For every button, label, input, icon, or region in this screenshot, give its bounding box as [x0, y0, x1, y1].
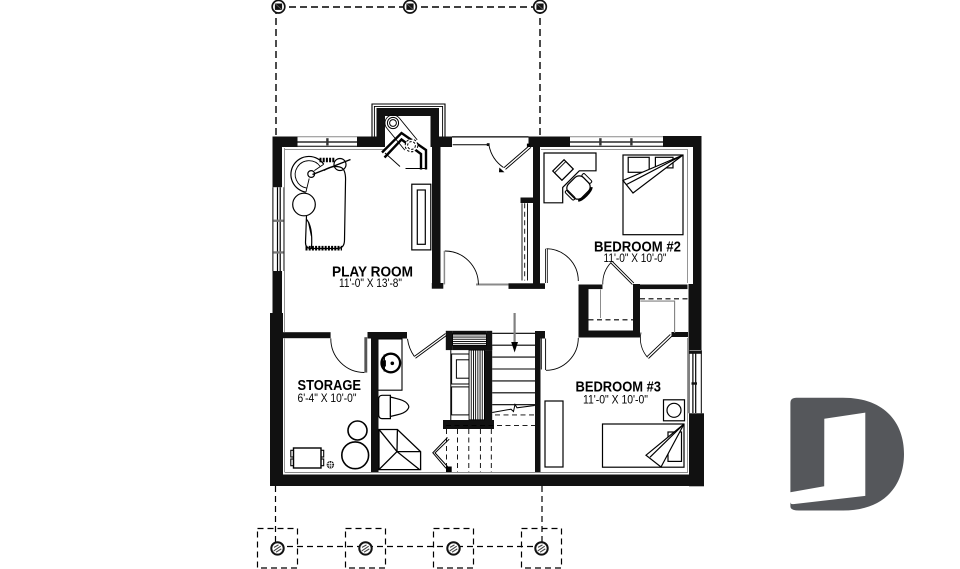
svg-text:11'-0" X 10'-0": 11'-0" X 10'-0"	[604, 251, 667, 265]
svg-text:11'-0" X 10'-0": 11'-0" X 10'-0"	[583, 393, 648, 407]
svg-text:6'-4" X 10'-0": 6'-4" X 10'-0"	[298, 391, 357, 405]
svg-text:11'-0" X 13'-8": 11'-0" X 13'-8"	[339, 276, 402, 290]
